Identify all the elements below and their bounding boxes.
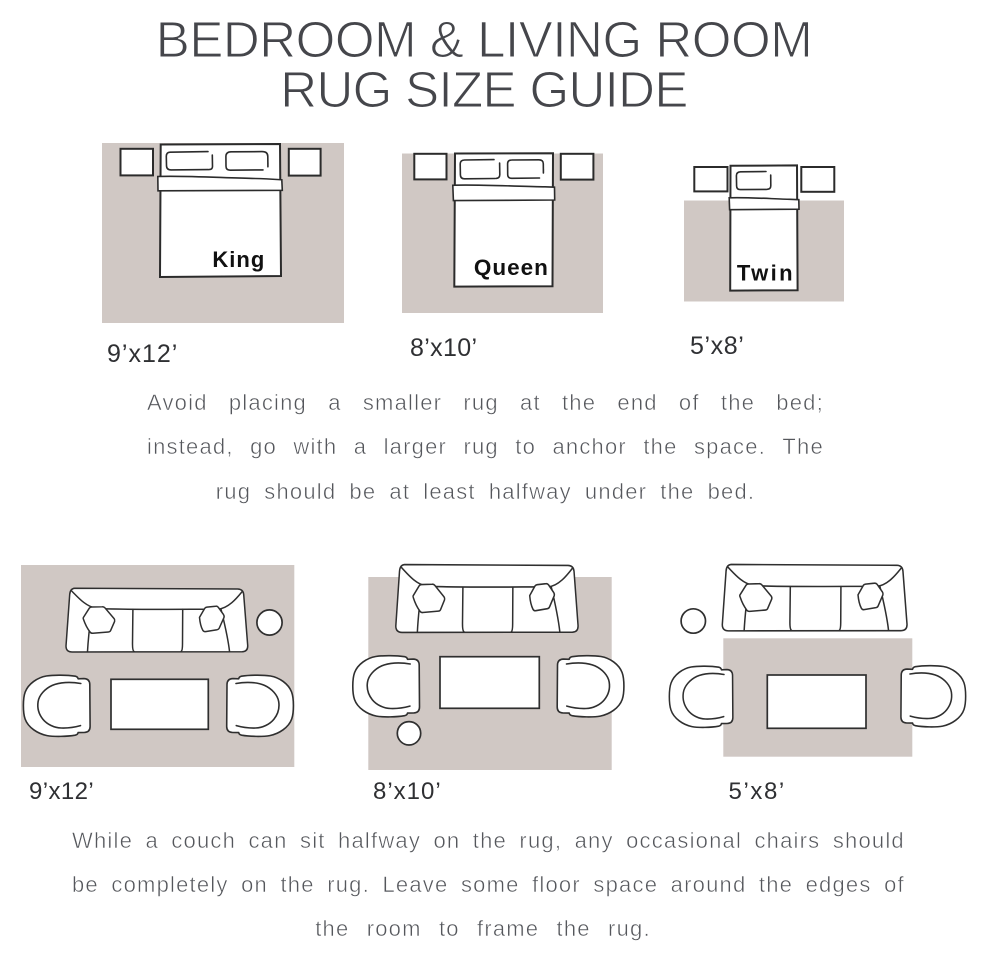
svg-text:King: King (212, 247, 265, 272)
svg-text:Queen: Queen (474, 255, 549, 280)
svg-text:Twin: Twin (737, 261, 795, 286)
